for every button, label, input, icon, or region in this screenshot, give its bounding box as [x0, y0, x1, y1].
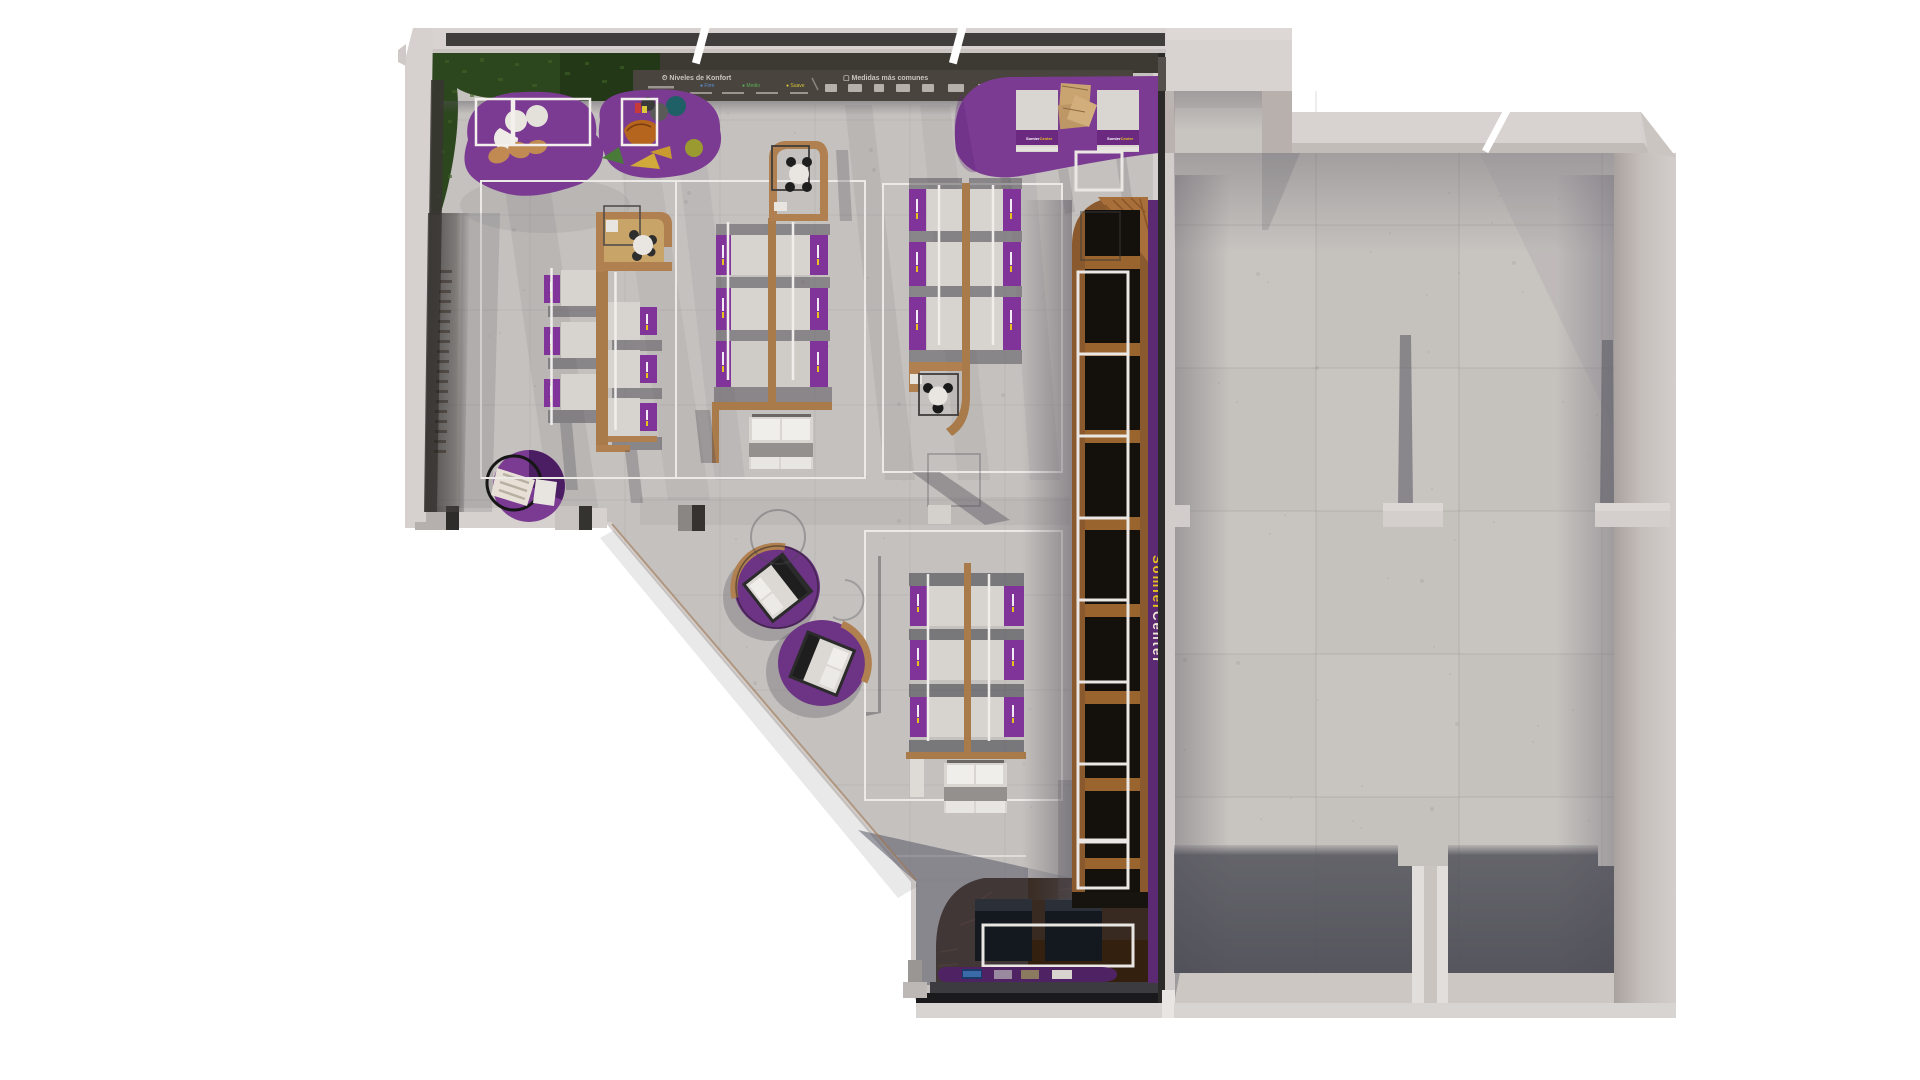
svg-text:● Firm: ● Firm	[700, 83, 714, 89]
svg-text:● Medio: ● Medio	[742, 83, 760, 89]
svg-text:⏲ Niveles de Konfort: ⏲ Niveles de Konfort	[662, 75, 732, 82]
svg-text:SomierCenter: SomierCenter	[1107, 136, 1134, 141]
svg-text:SomierCenter: SomierCenter	[1026, 136, 1053, 141]
svg-text:▢ Medidas más comunes: ▢ Medidas más comunes	[843, 75, 928, 82]
svg-text:● Suave: ● Suave	[786, 83, 805, 89]
